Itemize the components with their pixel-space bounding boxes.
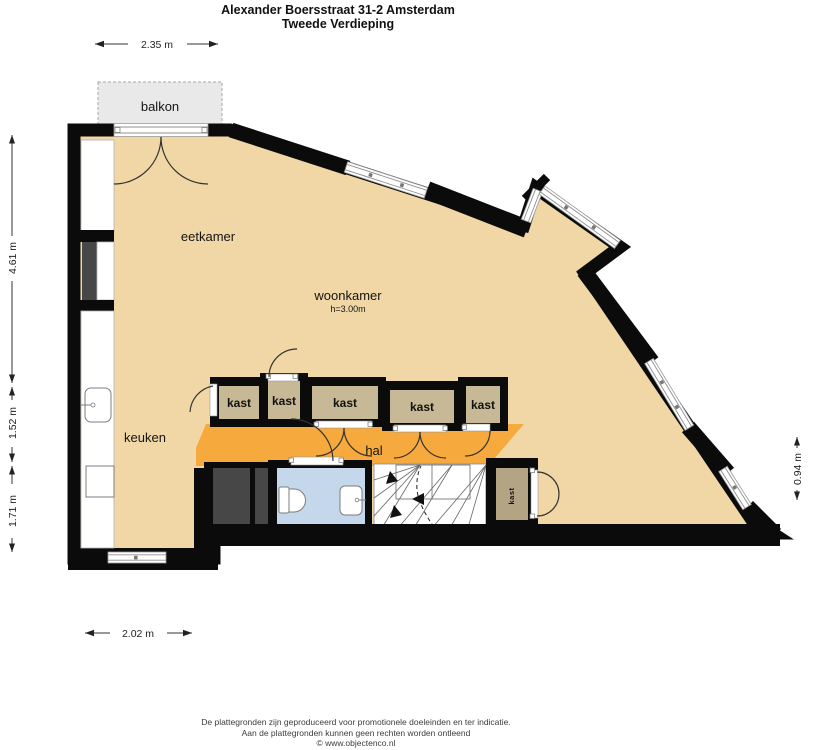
room-label-woonkamer: woonkamer xyxy=(313,288,382,303)
floor-plan-svg: 2.35 m 4.61 m 1.52 m 1.71 m 0.94 m xyxy=(0,0,814,750)
room-label-kast-1: kast xyxy=(227,396,251,410)
stove-icon xyxy=(86,466,114,497)
washbasin-icon xyxy=(340,486,366,515)
footer-line-2: Aan de plattegronden kunnen geen rechten… xyxy=(0,728,712,739)
floor-plan-page: Alexander Boersstraat 31-2 Amsterdam Twe… xyxy=(0,0,814,750)
footer-copyright: © www.objectenco.nl xyxy=(0,738,712,749)
dark-closet-right xyxy=(255,468,268,526)
title-address: Alexander Boersstraat 31-2 Amsterdam xyxy=(0,3,676,17)
room-label-balkon: balkon xyxy=(141,99,179,114)
dim-bottom-label: 2.02 m xyxy=(122,628,154,640)
balcony-door-threshold xyxy=(114,124,208,137)
room-label-keuken: keuken xyxy=(124,430,166,445)
room-label-kast-5: kast xyxy=(471,398,495,412)
dimension-right: 0.94 m xyxy=(792,437,804,500)
dim-right-label: 0.94 m xyxy=(792,453,804,485)
dimension-bottom: 2.02 m xyxy=(85,628,192,640)
page-title: Alexander Boersstraat 31-2 Amsterdam Twe… xyxy=(0,3,676,31)
bottom-wall xyxy=(204,524,780,546)
dim-top-label: 2.35 m xyxy=(141,39,173,51)
dimension-top: 2.35 m xyxy=(95,39,218,51)
dimension-left: 4.61 m 1.52 m 1.71 m xyxy=(7,135,19,552)
room-label-kast-small: kast xyxy=(507,487,516,504)
dark-closet-left xyxy=(213,468,250,526)
flue-panel xyxy=(82,242,97,300)
window xyxy=(108,552,166,563)
kast-row xyxy=(210,373,508,432)
room-label-hal: hal xyxy=(365,443,382,458)
dim-left-upper-label: 4.61 m xyxy=(7,242,19,274)
staircase xyxy=(374,464,490,528)
room-label-kast-4: kast xyxy=(410,400,434,414)
kitchen-sink-icon xyxy=(81,388,111,422)
title-floor: Tweede Verdieping xyxy=(0,17,676,31)
footer-line-1: De plattegronden zijn geproduceerd voor … xyxy=(0,717,712,728)
room-label-woonkamer-height: h=3.00m xyxy=(330,304,365,314)
room-label-kast-3: kast xyxy=(333,396,357,410)
room-label-eetkamer: eetkamer xyxy=(181,229,236,244)
dim-left-lower-label: 1.71 m xyxy=(7,495,19,527)
kitchen-counter xyxy=(80,140,114,548)
dim-left-middle-label: 1.52 m xyxy=(7,407,19,439)
room-label-kast-2: kast xyxy=(272,394,296,408)
footer-disclaimer: De plattegronden zijn geproduceerd voor … xyxy=(0,717,712,749)
service-row xyxy=(194,457,538,570)
